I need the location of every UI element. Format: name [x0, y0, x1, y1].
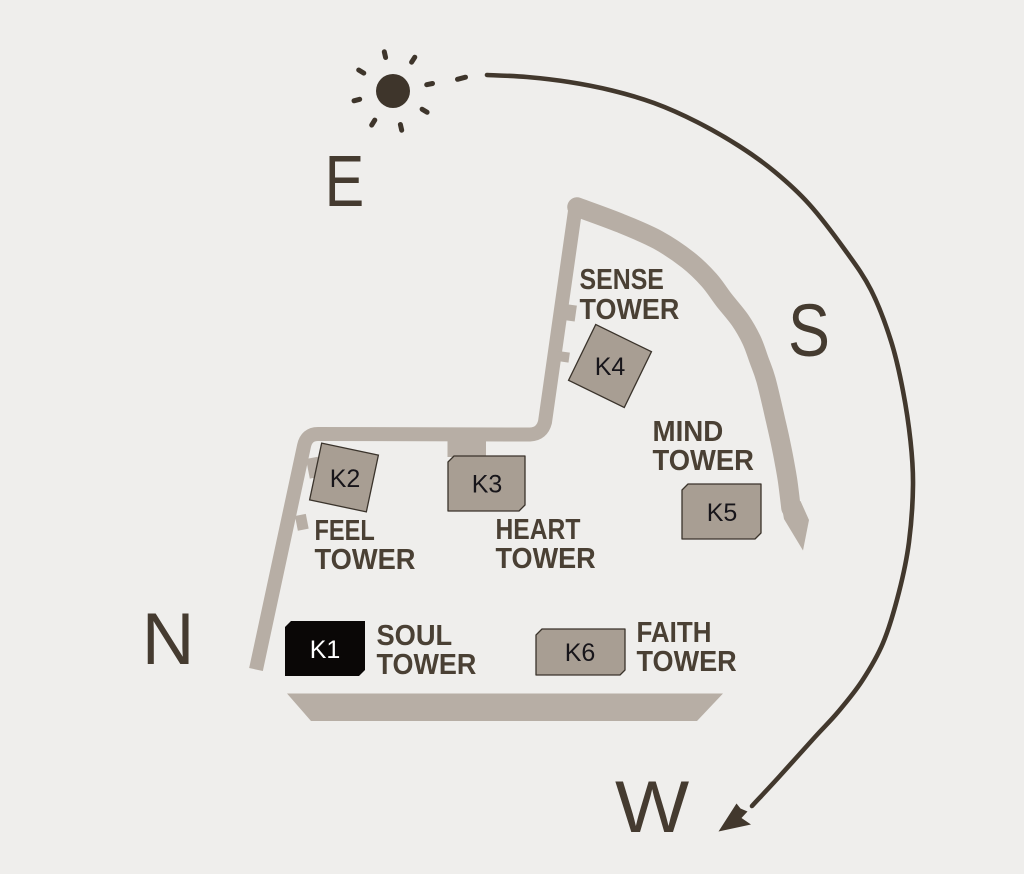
- svg-text:SENSE: SENSE: [580, 263, 664, 295]
- svg-text:K2: K2: [330, 465, 361, 493]
- svg-text:TOWER: TOWER: [637, 645, 737, 677]
- svg-text:TOWER: TOWER: [315, 543, 416, 575]
- svg-text:S: S: [788, 289, 830, 372]
- svg-text:W: W: [615, 767, 690, 849]
- svg-text:TOWER: TOWER: [653, 443, 754, 476]
- svg-text:K4: K4: [595, 353, 626, 381]
- svg-text:K1: K1: [310, 636, 341, 664]
- svg-text:N: N: [142, 599, 195, 680]
- svg-text:TOWER: TOWER: [496, 542, 596, 574]
- svg-text:K5: K5: [707, 499, 738, 527]
- svg-text:K3: K3: [472, 471, 503, 499]
- svg-text:E: E: [325, 141, 365, 222]
- svg-text:TOWER: TOWER: [377, 648, 477, 680]
- svg-text:SOUL: SOUL: [377, 619, 453, 651]
- svg-text:FAITH: FAITH: [637, 616, 712, 649]
- svg-text:FEEL: FEEL: [315, 514, 375, 547]
- svg-text:HEART: HEART: [496, 513, 581, 545]
- svg-text:K6: K6: [565, 639, 596, 667]
- svg-text:TOWER: TOWER: [580, 293, 680, 325]
